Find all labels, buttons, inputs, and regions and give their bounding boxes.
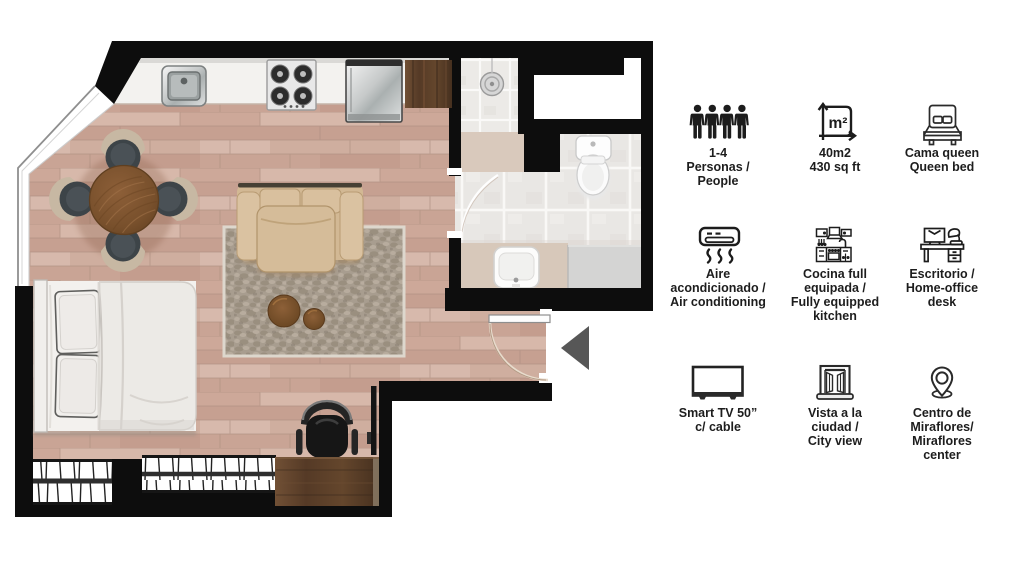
svg-text:center: center <box>923 448 961 462</box>
svg-text:Escritorio /: Escritorio / <box>909 267 975 281</box>
svg-text:acondicionado /: acondicionado / <box>670 281 766 295</box>
svg-text:ciudad /: ciudad / <box>811 420 859 434</box>
svg-text:Smart TV 50”: Smart TV 50” <box>679 406 758 420</box>
svg-text:Personas /: Personas / <box>686 160 750 174</box>
svg-text:Queen bed: Queen bed <box>910 160 975 174</box>
svg-text:40m2: 40m2 <box>819 146 851 160</box>
svg-text:Vista a la: Vista a la <box>808 406 863 420</box>
svg-text:430 sq ft: 430 sq ft <box>810 160 862 174</box>
svg-text:Centro de: Centro de <box>913 406 971 420</box>
svg-text:Air conditioning: Air conditioning <box>670 295 766 309</box>
svg-text:Fully equipped: Fully equipped <box>791 295 879 309</box>
svg-text:desk: desk <box>928 295 957 309</box>
svg-text:m²: m² <box>829 115 848 132</box>
svg-text:Cocina full: Cocina full <box>803 267 867 281</box>
svg-text:Aire: Aire <box>706 267 730 281</box>
svg-text:Cama queen: Cama queen <box>905 146 979 160</box>
svg-text:City view: City view <box>808 434 862 448</box>
svg-text:c/ cable: c/ cable <box>695 420 741 434</box>
svg-text:equipada /: equipada / <box>804 281 866 295</box>
svg-text:kitchen: kitchen <box>813 309 857 323</box>
svg-text:Miraflores: Miraflores <box>912 434 972 448</box>
svg-text:People: People <box>698 174 739 188</box>
svg-text:Miraflores/: Miraflores/ <box>910 420 974 434</box>
svg-text:1-4: 1-4 <box>709 146 727 160</box>
svg-text:Home-office: Home-office <box>906 281 978 295</box>
